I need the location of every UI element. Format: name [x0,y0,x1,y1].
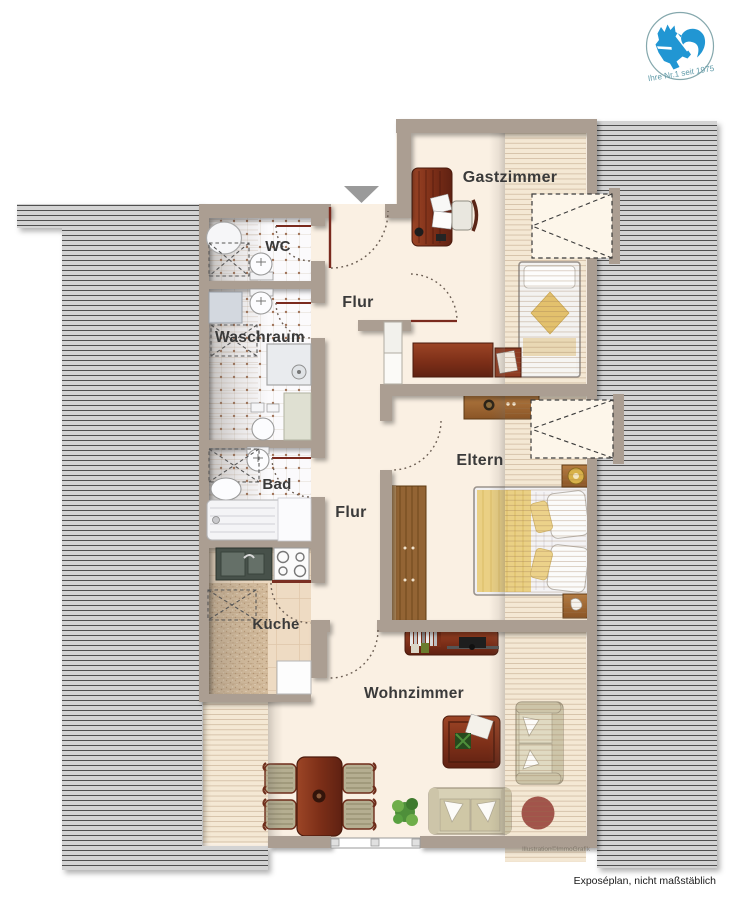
svg-text:Waschraum: Waschraum [215,329,305,346]
svg-text:Illustration©ImmoGrafik: Illustration©ImmoGrafik [522,845,591,853]
svg-text:Küche: Küche [252,616,299,633]
svg-text:Exposéplan, nicht maßstäblich: Exposéplan, nicht maßstäblich [574,875,717,887]
svg-text:Flur: Flur [335,504,366,521]
svg-text:Bad: Bad [262,476,291,493]
svg-text:Wohnzimmer: Wohnzimmer [364,685,464,702]
svg-text:Flur: Flur [342,294,373,311]
svg-text:Gastzimmer: Gastzimmer [463,169,558,186]
svg-text:Eltern: Eltern [456,452,503,469]
svg-text:WC: WC [265,238,291,255]
